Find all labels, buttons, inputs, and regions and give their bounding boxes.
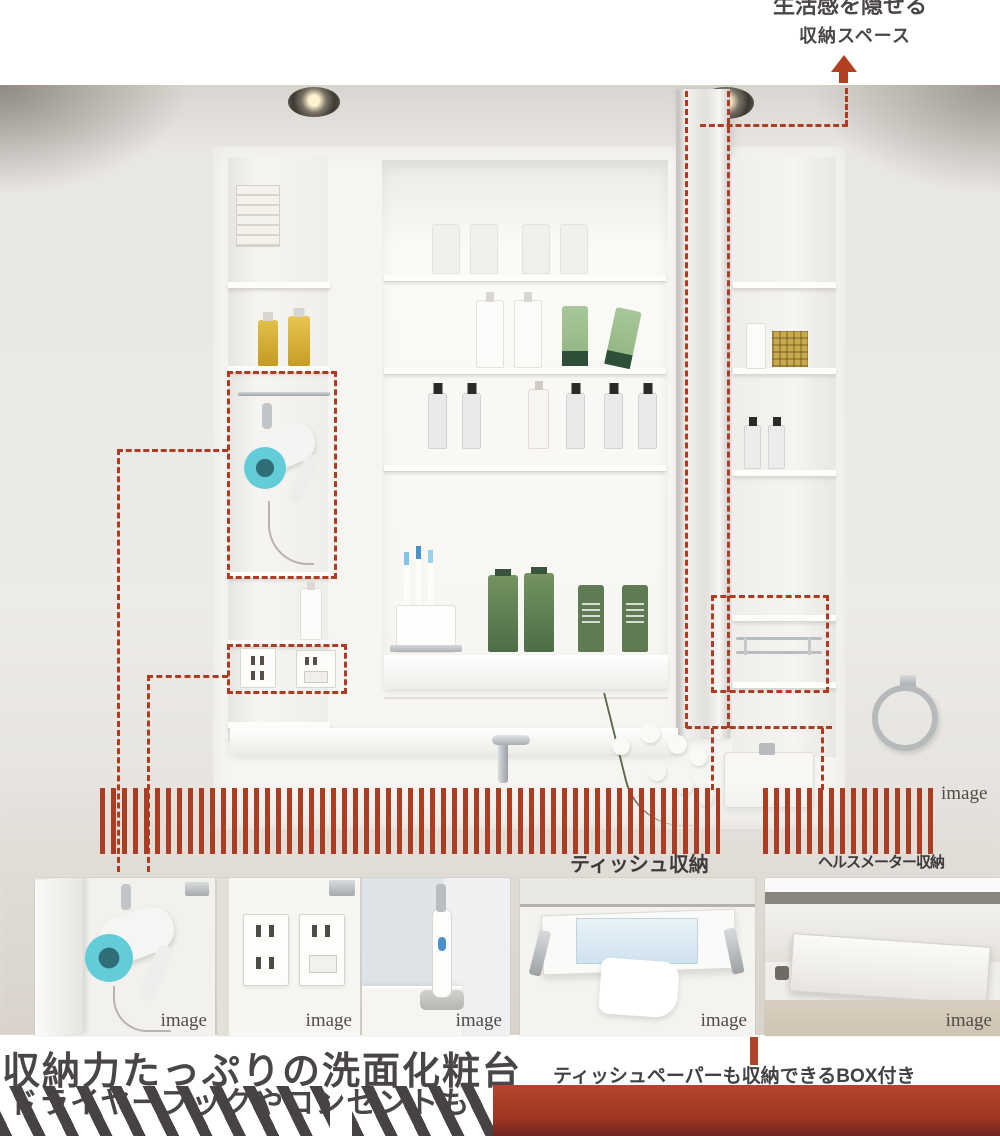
shelf	[733, 368, 836, 375]
spray-bottle	[462, 393, 481, 449]
green-cylinder	[622, 585, 648, 652]
inset-caption: image	[456, 1010, 502, 1032]
annotation-leader	[117, 449, 228, 452]
spray-bottle	[638, 393, 657, 449]
annotation-leader	[821, 728, 824, 790]
orchid-flower	[648, 763, 666, 781]
orchid-flower	[690, 749, 707, 766]
annotation-leader	[686, 726, 832, 729]
shelf	[384, 275, 666, 282]
white-bottle	[300, 588, 322, 640]
annotation-leader	[845, 88, 848, 126]
spray-bottle	[768, 425, 785, 469]
shelf	[384, 465, 666, 472]
orchid-flower	[640, 723, 660, 743]
cabinet-side	[217, 878, 229, 1036]
electric-toothbrush	[432, 908, 452, 998]
photo-caption: image	[941, 783, 987, 805]
toothbrush	[404, 552, 409, 612]
shelf	[228, 282, 330, 289]
decorative-stripes	[352, 1086, 515, 1136]
red-band	[493, 1085, 1000, 1136]
hinge	[775, 966, 789, 980]
shelf	[733, 470, 836, 477]
faucet-spout	[492, 735, 530, 745]
headline-line2: 収納スペース	[773, 21, 927, 51]
downlight-icon	[288, 87, 340, 117]
toothbrush	[416, 546, 421, 612]
decorative-stripes	[0, 1086, 330, 1136]
annotation-box-outlet	[227, 644, 347, 694]
inset-hair-dryer: image	[35, 878, 215, 1036]
annotation-leader	[147, 675, 228, 678]
spray-bottle	[566, 393, 585, 449]
annotation-box-hair-dryer	[227, 371, 337, 579]
spray-bottle	[428, 393, 447, 449]
headline-line1: 生活感を隠せる	[773, 0, 927, 21]
promo-graphic: 生活感を隠せる 収納スペース	[0, 0, 1000, 1136]
counter-underside	[520, 878, 755, 907]
spray-bottle	[744, 425, 761, 469]
towel-ring	[872, 685, 938, 751]
chrome-tray	[390, 645, 462, 652]
gap-shadow	[765, 892, 1000, 904]
counter-front	[230, 728, 678, 754]
annotation-box-shelf	[711, 595, 829, 693]
white-bottle	[746, 323, 766, 369]
pump-bottle	[528, 389, 549, 449]
orchid-flower	[612, 737, 630, 755]
headline: 生活感を隠せる 収納スペース	[773, 0, 927, 51]
inset-caption: image	[161, 1010, 207, 1032]
brush-head	[436, 884, 446, 912]
outlet-switch-plate	[299, 914, 345, 986]
inset-outlets: image	[217, 878, 360, 1036]
annotation-door-edge	[685, 91, 688, 728]
shelf	[384, 368, 666, 375]
bottle	[560, 224, 588, 274]
inset-caption: image	[701, 1010, 747, 1032]
shelf	[733, 282, 836, 289]
hook	[121, 884, 131, 910]
annotation-fringe-left	[100, 788, 720, 854]
ceiling-shadow	[0, 85, 190, 195]
hair-dryer-face	[85, 934, 133, 982]
green-cylinder	[578, 585, 604, 652]
faucet	[498, 741, 508, 783]
amber-bottle	[288, 316, 310, 366]
bottle	[432, 224, 460, 274]
label-tissue-storage: ティッシュ収納	[570, 848, 709, 877]
annotation-fringe-right	[763, 788, 935, 854]
inset-caption: image	[306, 1010, 352, 1032]
green-tube	[562, 306, 588, 366]
green-tube-large	[524, 573, 554, 652]
spray-bottle	[604, 393, 623, 449]
annotation-leader	[700, 124, 848, 127]
cabinet-face	[765, 878, 1000, 892]
bottle	[470, 224, 498, 274]
amber-bottle	[258, 320, 278, 366]
open-flap	[789, 933, 991, 1005]
hinge	[185, 882, 209, 896]
tissue-paper	[598, 957, 680, 1018]
arrow-up-icon-stem	[839, 71, 848, 83]
bottle	[522, 224, 550, 274]
annotation-leader	[711, 728, 714, 790]
counter-ledge	[384, 655, 668, 689]
pump-bottle	[514, 300, 542, 368]
tissue-box	[576, 918, 698, 964]
red-marker	[750, 1037, 758, 1065]
open-door	[35, 878, 83, 1036]
orchid-flower	[668, 735, 687, 754]
footnote: ティッシュペーパーも収納できるBOX付き	[553, 1061, 915, 1088]
gold-box	[772, 331, 808, 367]
outlet-plate	[243, 914, 289, 986]
arrow-up-icon	[831, 55, 857, 72]
green-tube-large	[488, 575, 518, 652]
hinge	[329, 880, 355, 896]
inset-tissue-storage: image	[520, 878, 755, 1036]
label-scale-storage: ヘルスメーター収納	[818, 851, 944, 872]
pump-bottle	[476, 300, 504, 368]
inset-scale-storage: image	[765, 878, 1000, 1036]
manual-sticker	[236, 185, 280, 247]
inset-caption: image	[946, 1010, 992, 1032]
inset-toothbrush: image	[362, 878, 510, 1036]
toothbrush	[428, 550, 433, 612]
